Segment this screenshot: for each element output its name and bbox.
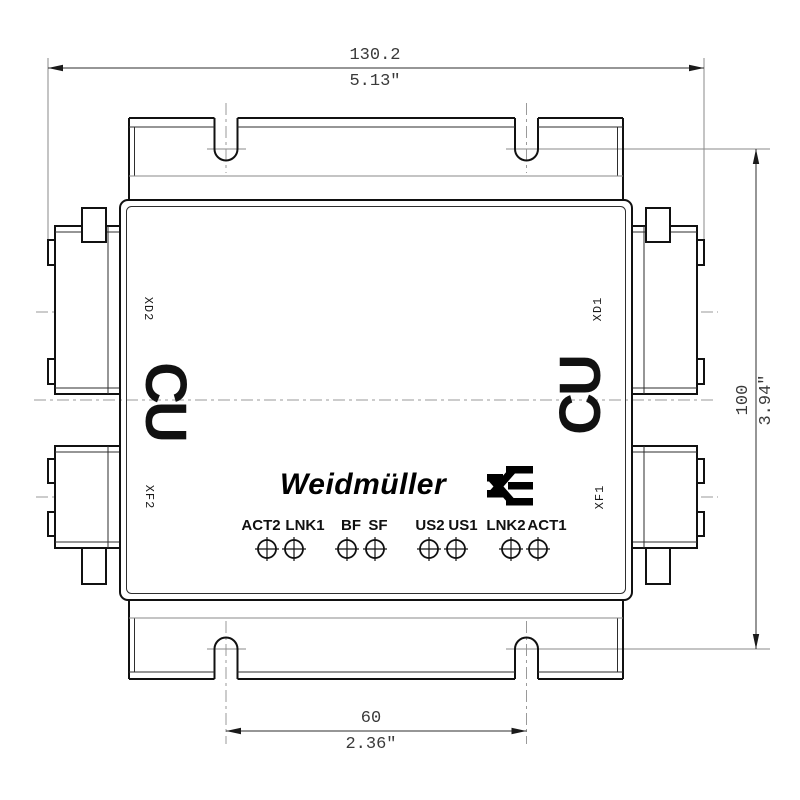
latch [82, 208, 106, 242]
connector-xf1-outline [632, 446, 697, 548]
height-dimension-mm: 100 [734, 360, 754, 440]
height-dimension-inch: 3.94" [757, 360, 777, 440]
flange-side-edges [129, 118, 623, 200]
port-label-xf2: XF2 [141, 462, 157, 532]
led-crosshair [255, 537, 279, 561]
latch [646, 548, 670, 584]
flange-inner-line [135, 618, 618, 672]
flange-side-edges [129, 600, 623, 679]
led-label-sf: SF [348, 518, 408, 534]
arrowhead-right [689, 65, 704, 71]
weidmueller-logo-icon [487, 466, 533, 506]
bottom-mounting-flange [129, 600, 623, 679]
slot-spacing-dimension-inch: 2.36" [331, 735, 411, 755]
port-label-xd2: XD2 [140, 274, 156, 344]
port-label-xf1: XF1 [592, 462, 608, 532]
led-crosshair [335, 537, 359, 561]
brand-logo-text: Weidmüller [280, 468, 446, 502]
led-crosshair [363, 537, 387, 561]
material-marking-cu-right: CU [551, 336, 611, 456]
material-marking-cu-left: CU [135, 341, 195, 461]
top-mounting-flange [129, 118, 623, 200]
arrowhead-left [226, 728, 241, 734]
led-crosshair [444, 537, 468, 561]
led-label-act1: ACT1 [517, 518, 577, 534]
led-crosshair [526, 537, 550, 561]
dimension-drawing: 130.2 5.13" 100 3.94" 60 2.36" XD2 XF2 X… [0, 0, 800, 800]
width-dimension-mm: 130.2 [325, 46, 425, 66]
connector-xd2-outline [55, 226, 120, 394]
slot-spacing-dimension-mm: 60 [336, 709, 406, 729]
connector-xf2-outline [55, 446, 120, 548]
flange-inner-line [135, 127, 618, 176]
width-dimension-inch: 5.13" [325, 72, 425, 92]
arrowhead-right [512, 728, 527, 734]
connector-xd1-outline [632, 226, 697, 394]
led-indicators [255, 537, 550, 561]
led-crosshair [282, 537, 306, 561]
arrowhead-down [753, 634, 759, 649]
led-crosshair [417, 537, 441, 561]
port-label-xd1: XD1 [590, 274, 606, 344]
led-crosshair [499, 537, 523, 561]
drawing-linework [0, 0, 800, 800]
arrowhead-up [753, 149, 759, 164]
latch [82, 548, 106, 584]
arrowhead-left [48, 65, 63, 71]
latch [646, 208, 670, 242]
